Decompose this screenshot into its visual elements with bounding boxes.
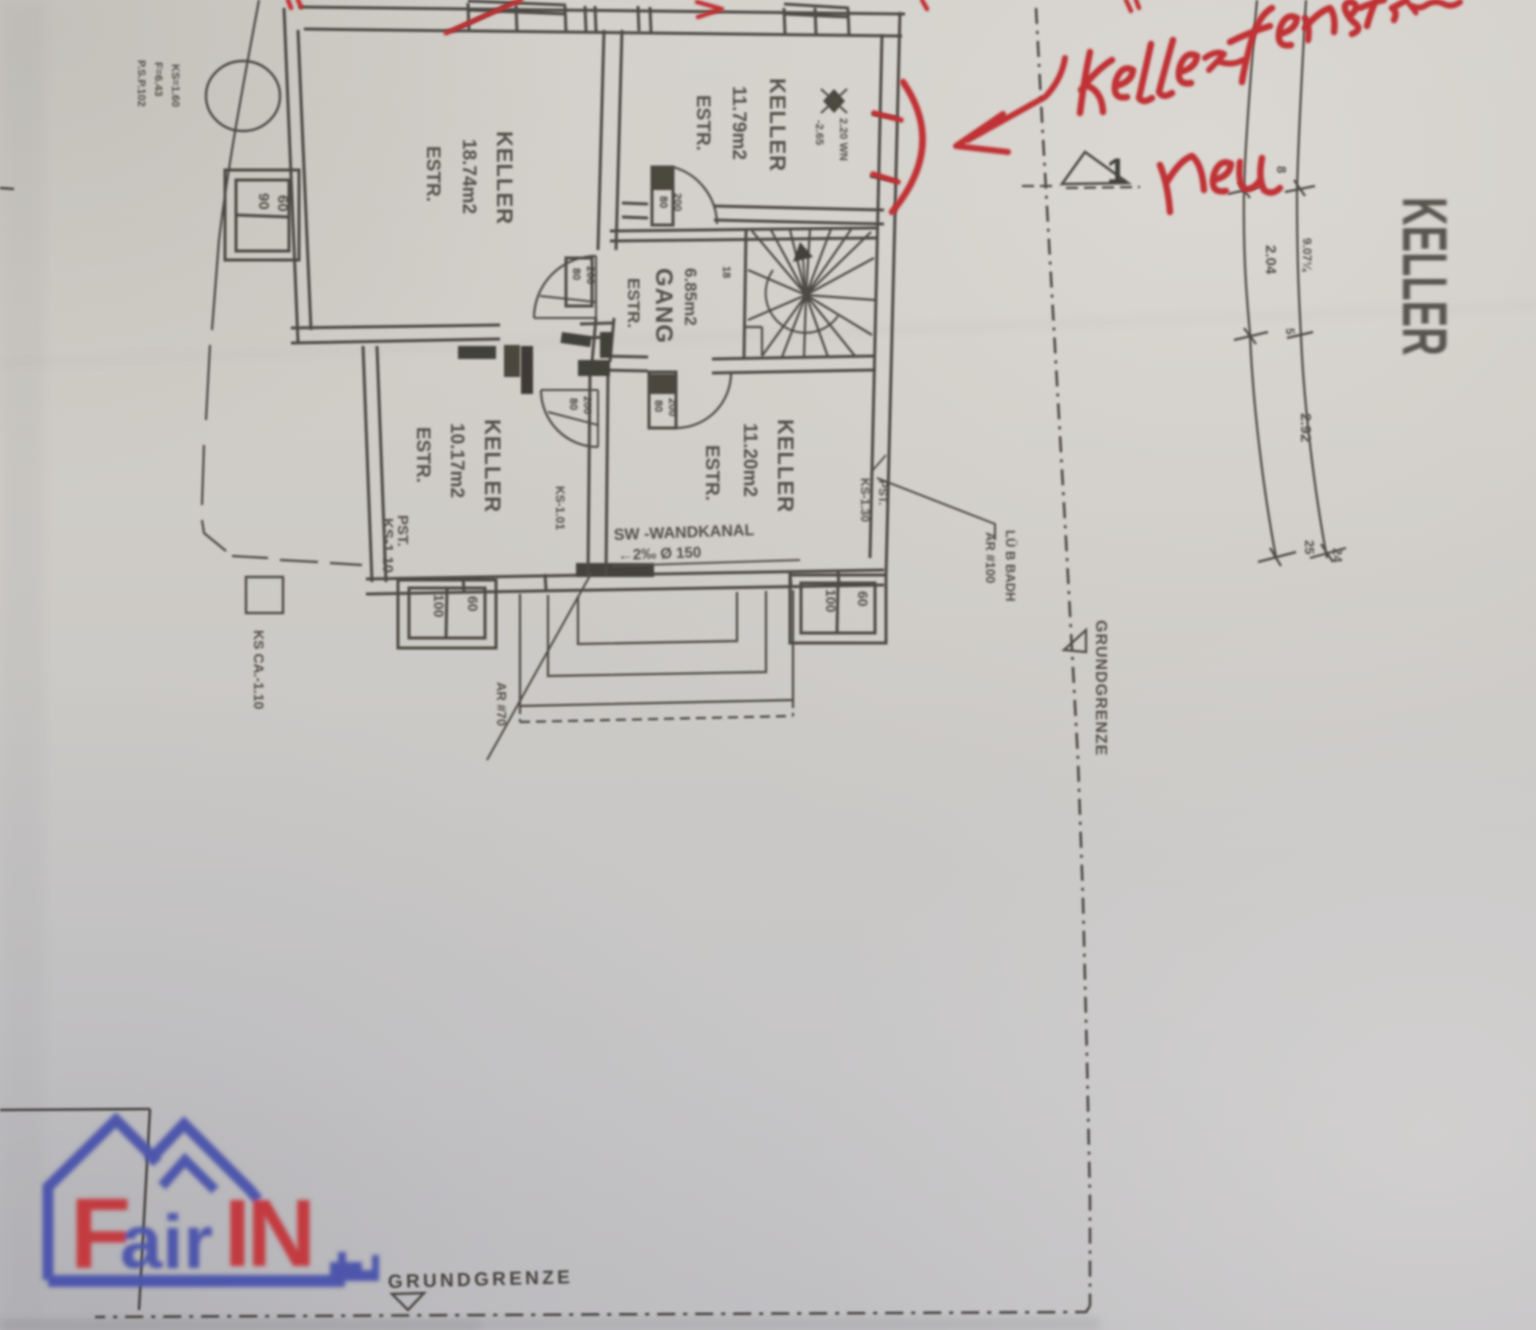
svg-text:LÜ B BADH: LÜ B BADH: [1003, 530, 1018, 602]
svg-text:AR #70: AR #70: [494, 682, 509, 726]
svg-text:IN: IN: [224, 1180, 312, 1287]
svg-text:GRUNDGRENZE: GRUNDGRENZE: [1092, 620, 1109, 756]
svg-text:ESTR.: ESTR.: [422, 146, 443, 202]
svg-text:2.04: 2.04: [1262, 245, 1279, 275]
svg-text:ESTR.: ESTR.: [412, 427, 433, 483]
svg-text:GANG: GANG: [650, 268, 677, 344]
svg-text:80: 80: [570, 268, 582, 280]
svg-text:11.79m2: 11.79m2: [728, 86, 749, 160]
svg-text:100: 100: [823, 589, 839, 613]
svg-text:90: 90: [255, 193, 272, 210]
svg-text:9.07¼: 9.07¼: [1300, 238, 1314, 272]
svg-text:F=6.43: F=6.43: [152, 62, 164, 97]
svg-text:11.20m2: 11.20m2: [739, 423, 760, 497]
svg-text:KS CA.-1.10: KS CA.-1.10: [251, 630, 267, 710]
svg-text:5: 5: [1283, 328, 1297, 335]
svg-text:PST.: PST.: [876, 480, 890, 505]
svg-text:ESTR.: ESTR.: [624, 278, 643, 328]
svg-text:KELLER: KELLER: [765, 78, 790, 172]
svg-text:80: 80: [567, 398, 579, 410]
svg-text:200: 200: [666, 398, 678, 416]
svg-text:200: 200: [671, 193, 683, 211]
svg-text:KELLER: KELLER: [480, 419, 505, 513]
svg-text:100: 100: [431, 594, 447, 618]
svg-text:2.92: 2.92: [1297, 413, 1314, 442]
svg-text:200: 200: [584, 266, 596, 284]
svg-text:18: 18: [720, 266, 732, 278]
svg-text:P.S.P.102: P.S.P.102: [135, 60, 147, 107]
svg-text:60: 60: [465, 596, 481, 612]
svg-text:KS-1.01: KS-1.01: [553, 486, 567, 530]
svg-text:2.20 WN: 2.20 WN: [837, 118, 849, 161]
svg-text:18.74m2: 18.74m2: [458, 139, 479, 214]
svg-text:KS-1.30: KS-1.30: [858, 478, 872, 522]
svg-text:80: 80: [652, 400, 664, 412]
svg-text:KELLER: KELLER: [773, 419, 798, 513]
svg-text:25: 25: [1302, 540, 1317, 554]
svg-text:ESTR.: ESTR.: [701, 445, 722, 501]
svg-text:80: 80: [657, 196, 669, 208]
svg-text:ESTR.: ESTR.: [692, 95, 713, 151]
svg-text:KS-1.10: KS-1.10: [379, 518, 396, 573]
svg-text:10.17m2: 10.17m2: [446, 423, 467, 498]
svg-text:KS=1.60: KS=1.60: [169, 64, 181, 107]
svg-text:60: 60: [274, 195, 291, 212]
svg-text:24: 24: [1330, 548, 1345, 563]
svg-text:200: 200: [581, 396, 593, 414]
svg-text:←2‰ Ø 150: ←2‰ Ø 150: [618, 544, 702, 564]
svg-text:AR #100: AR #100: [983, 532, 998, 583]
svg-text:-2.65: -2.65: [813, 120, 825, 145]
svg-text:KELLER: KELLER: [492, 131, 517, 225]
svg-text:6.85m2: 6.85m2: [681, 268, 700, 326]
svg-text:8: 8: [1274, 166, 1289, 173]
svg-text:1: 1: [1107, 152, 1126, 191]
svg-text:air: air: [120, 1200, 213, 1285]
svg-text:KELLER: KELLER: [1389, 197, 1460, 356]
svg-text:60: 60: [855, 591, 871, 607]
